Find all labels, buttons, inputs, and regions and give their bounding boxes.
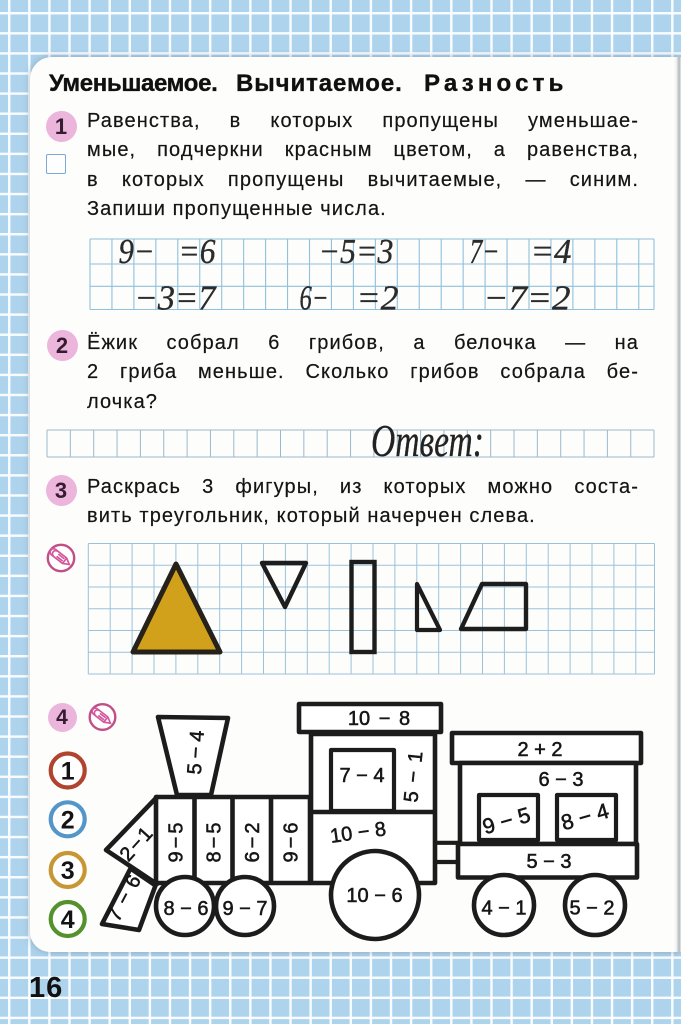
svg-text:5 − 2: 5 − 2 xyxy=(569,898,614,920)
svg-text:−7=2: −7=2 xyxy=(484,279,571,318)
svg-text:7 − 4: 7 − 4 xyxy=(339,765,384,787)
svg-text:9−5: 9−5 xyxy=(166,820,188,863)
svg-text:9−: 9− xyxy=(119,232,155,271)
svg-text:6 − 3: 6 − 3 xyxy=(538,769,583,791)
svg-text:10 − 6: 10 − 6 xyxy=(346,885,402,907)
svg-text:=4: =4 xyxy=(531,232,572,271)
svg-text:9−6: 9−6 xyxy=(281,820,303,863)
svg-text:8 − 6: 8 − 6 xyxy=(163,898,208,920)
svg-text:=6: =6 xyxy=(179,232,216,271)
svg-text:4 − 1: 4 − 1 xyxy=(481,898,526,920)
svg-text:2: 2 xyxy=(61,806,75,834)
svg-text:6−2: 6−2 xyxy=(242,820,264,863)
svg-text:4: 4 xyxy=(61,906,75,934)
svg-text:5−4: 5−4 xyxy=(184,725,209,775)
svg-text:2 + 2: 2 + 2 xyxy=(517,739,562,761)
svg-text:8−5: 8−5 xyxy=(204,820,226,863)
svg-text:5 − 3: 5 − 3 xyxy=(526,851,571,873)
svg-text:=2: =2 xyxy=(357,279,399,318)
svg-text:9 − 7: 9 − 7 xyxy=(222,898,267,920)
svg-text:6−: 6− xyxy=(300,279,329,318)
svg-text:7−: 7− xyxy=(470,232,500,271)
svg-text:10 − 8: 10 − 8 xyxy=(348,708,410,730)
svg-text:−3=7: −3=7 xyxy=(135,279,217,318)
svg-text:Ответ:: Ответ: xyxy=(371,415,484,466)
svg-text:−5=3: −5=3 xyxy=(319,232,394,271)
svg-text:3: 3 xyxy=(61,857,75,885)
svg-text:1: 1 xyxy=(61,758,75,786)
